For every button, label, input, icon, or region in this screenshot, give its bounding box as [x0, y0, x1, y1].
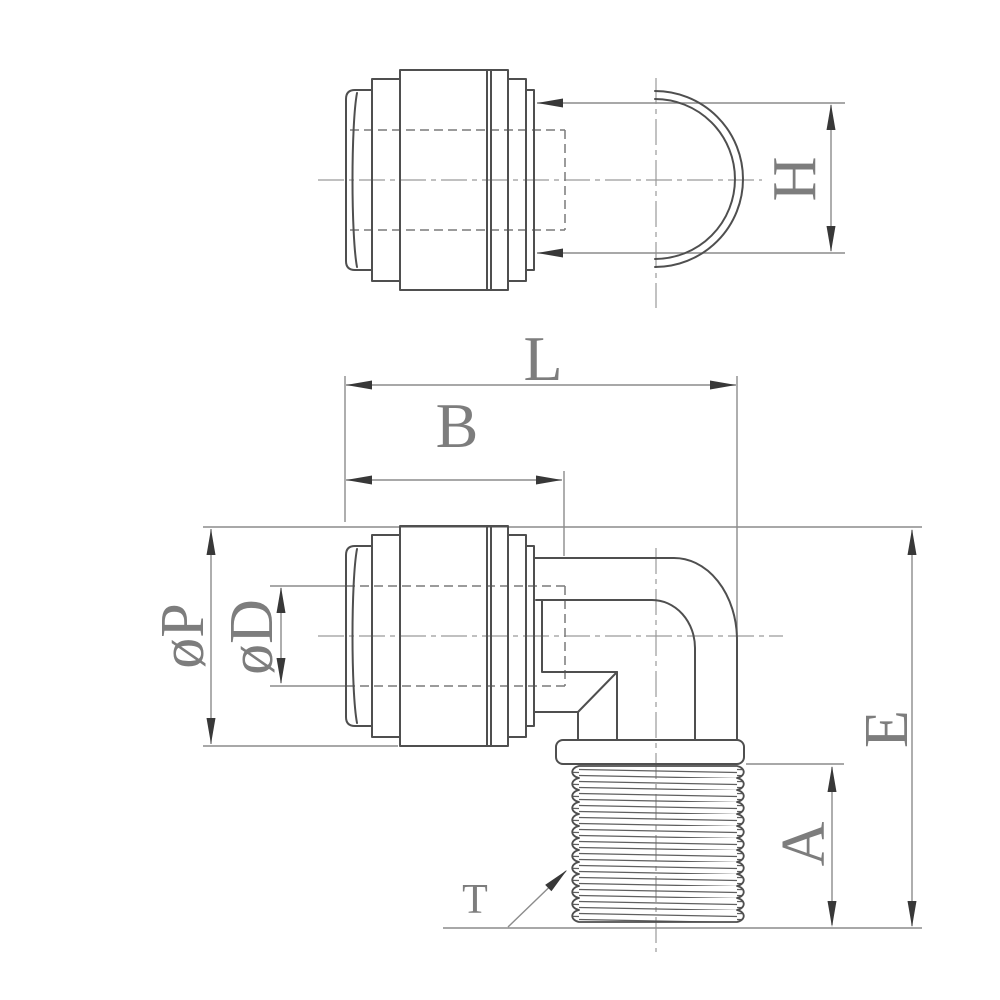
arrowhead — [828, 901, 837, 927]
hex-collar — [556, 740, 744, 764]
arrowhead — [346, 381, 372, 390]
collet-cap-contour — [353, 549, 358, 723]
arrowhead — [207, 718, 216, 744]
dim-label-phi-d: øD — [218, 599, 286, 675]
arrowhead — [207, 529, 216, 555]
arrowhead — [827, 104, 836, 130]
technical-drawing-canvas: H L B øP øD E A T — [0, 0, 1000, 1000]
arrowhead — [537, 249, 563, 258]
label-layer: H L B øP øD E A T — [149, 157, 921, 923]
dim-label-phi-p: øP — [149, 603, 217, 668]
outline-layer — [346, 70, 744, 922]
dim-label-h: H — [761, 157, 829, 202]
dimension-b — [346, 471, 564, 556]
dimension-l — [345, 376, 737, 634]
arrowhead — [828, 766, 837, 792]
thread-region — [572, 766, 744, 922]
dim-label-t: T — [462, 877, 488, 923]
dim-label-e: E — [853, 710, 921, 748]
arrowhead — [908, 529, 917, 555]
arrowhead — [545, 867, 570, 892]
dim-label-l: L — [523, 323, 562, 394]
arrowhead — [346, 476, 372, 485]
arrowhead — [827, 226, 836, 252]
bend-outer-arc — [655, 91, 743, 267]
elbow-bend-top-view — [655, 91, 743, 267]
dimension-layer — [203, 103, 922, 928]
collet-cap-contour — [353, 93, 358, 267]
arrowhead — [710, 381, 736, 390]
arrowhead — [537, 99, 563, 108]
dim-label-b: B — [436, 390, 479, 461]
dim-label-a: A — [770, 821, 838, 866]
arrowhead-layer — [207, 99, 917, 928]
arrowhead — [536, 476, 562, 485]
arrowhead — [908, 901, 917, 927]
elbow-chamfer — [578, 672, 617, 712]
elbow-inner-profile — [536, 600, 695, 740]
